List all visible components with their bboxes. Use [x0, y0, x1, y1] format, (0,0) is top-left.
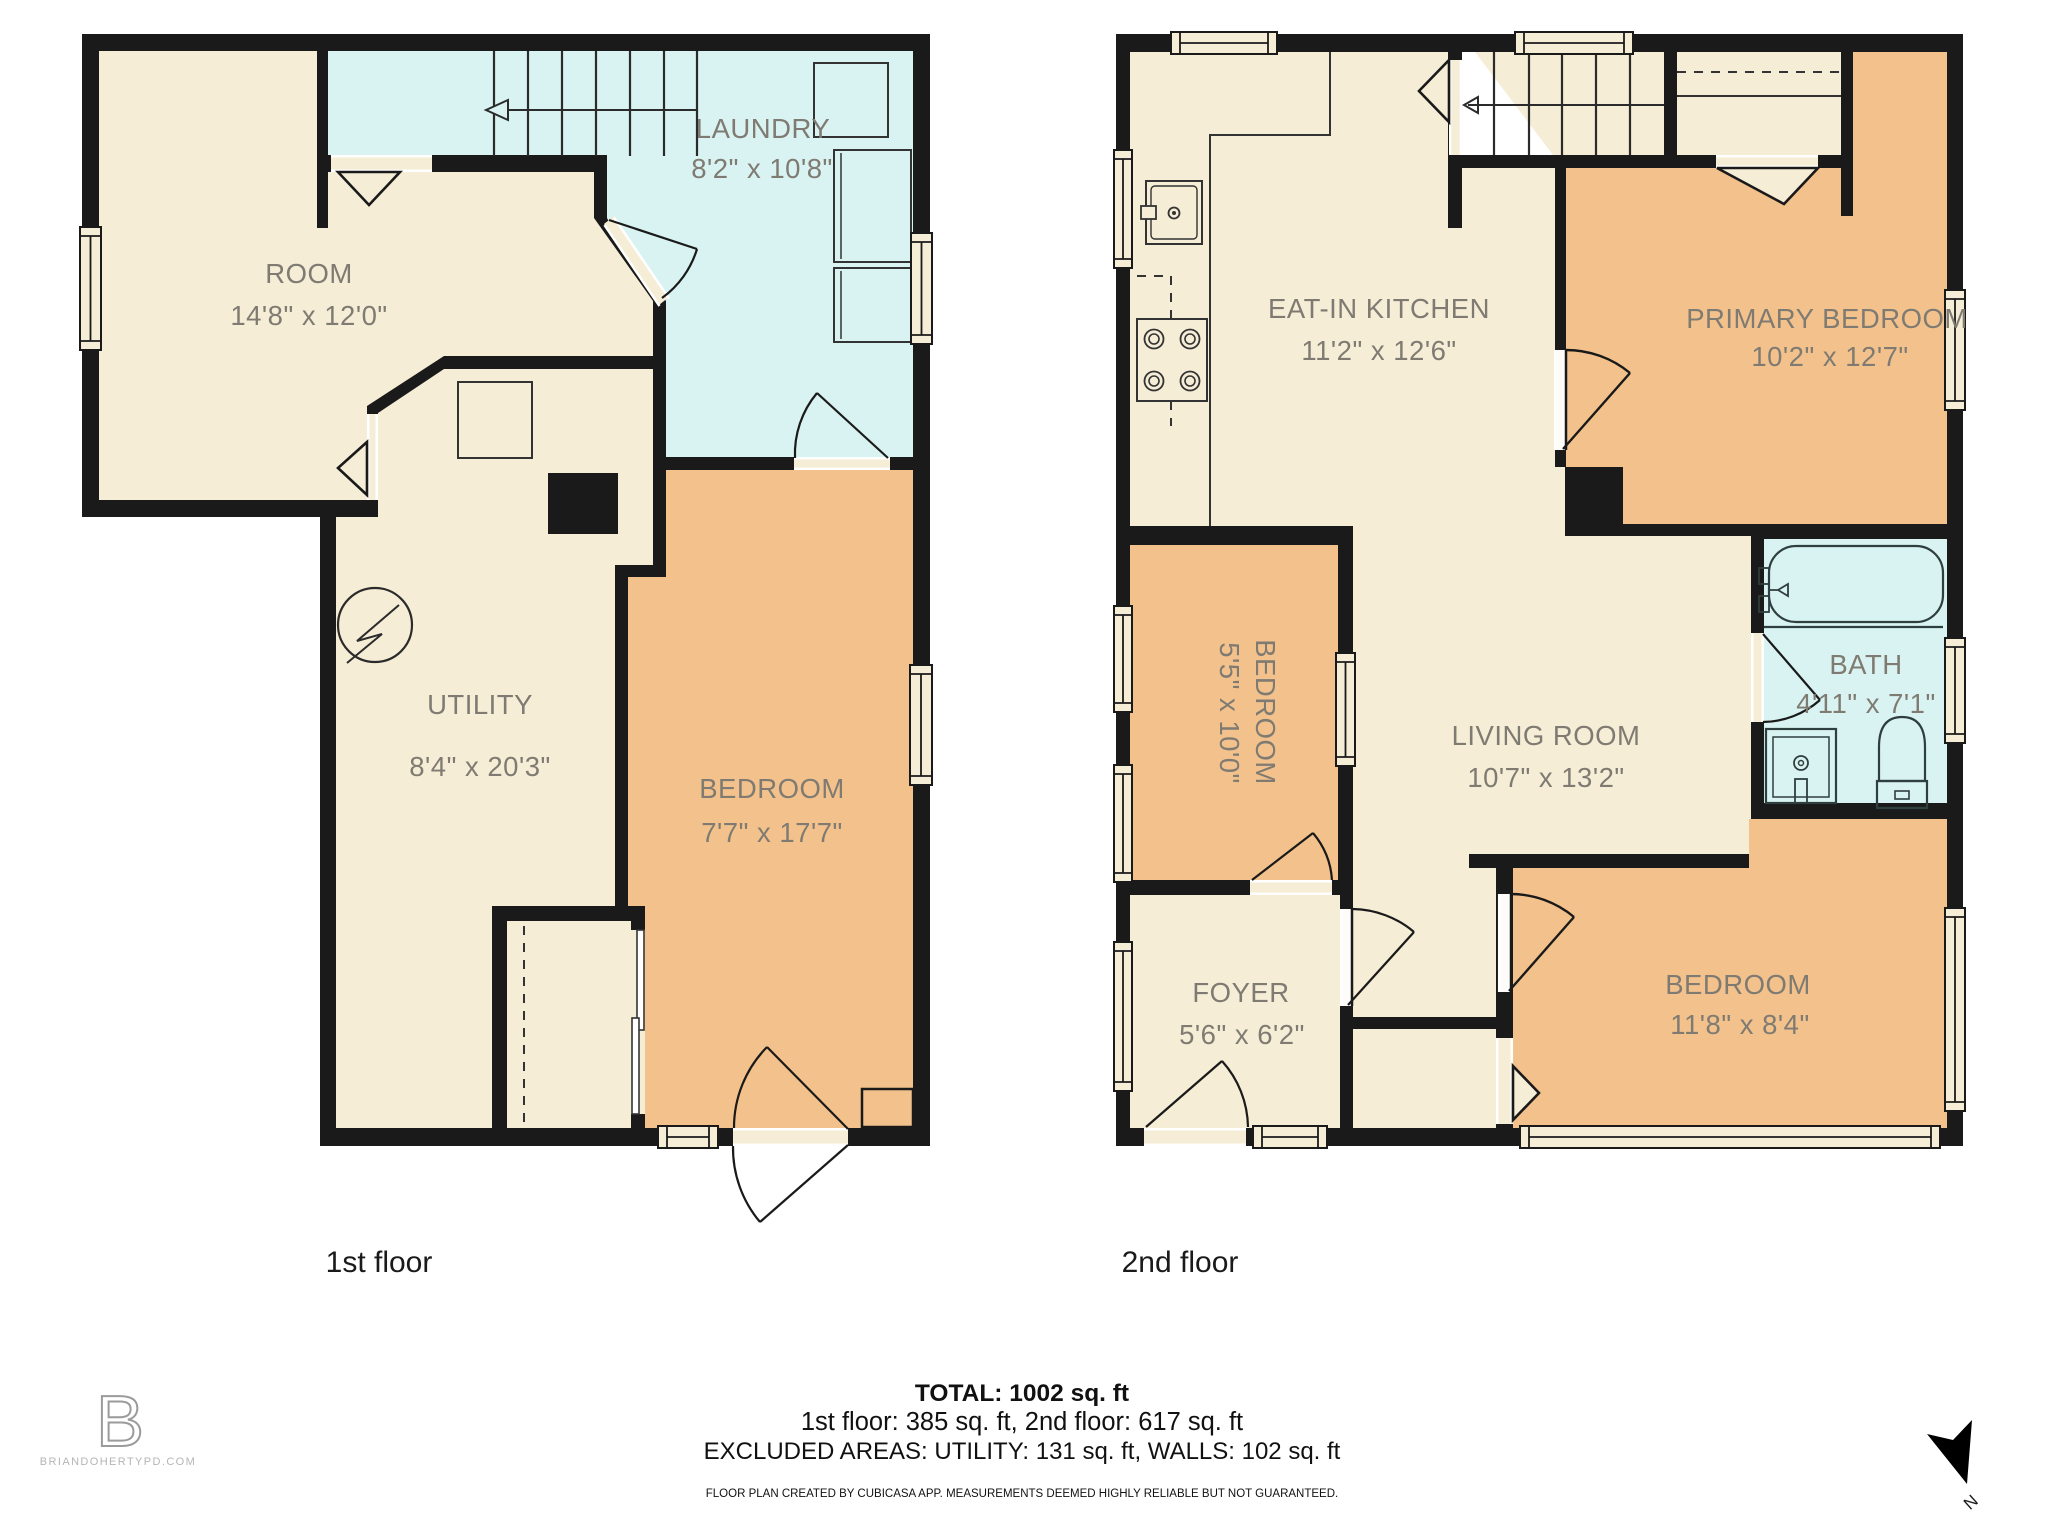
svg-text:BATH: BATH — [1829, 649, 1902, 680]
svg-text:FOYER: FOYER — [1192, 977, 1289, 1008]
svg-text:BRIANDOHERTYPD.COM: BRIANDOHERTYPD.COM — [40, 1456, 196, 1468]
svg-text:UTILITY: UTILITY — [427, 689, 533, 720]
svg-text:EXCLUDED AREAS: UTILITY: 131 s: EXCLUDED AREAS: UTILITY: 131 sq. ft, WAL… — [704, 1438, 1341, 1465]
svg-text:BEDROOM: BEDROOM — [1665, 969, 1811, 1000]
svg-text:LIVING ROOM: LIVING ROOM — [1452, 720, 1641, 751]
svg-text:ROOM: ROOM — [265, 258, 353, 289]
svg-text:B: B — [96, 1382, 144, 1462]
svg-text:7'7" x 17'7": 7'7" x 17'7" — [701, 817, 843, 848]
svg-text:EAT-IN KITCHEN: EAT-IN KITCHEN — [1268, 293, 1490, 324]
svg-text:11'2" x 12'6": 11'2" x 12'6" — [1301, 335, 1456, 366]
svg-text:FLOOR PLAN CREATED BY CUBICASA: FLOOR PLAN CREATED BY CUBICASA APP. MEAS… — [706, 1488, 1338, 1500]
svg-text:2nd floor: 2nd floor — [1122, 1246, 1239, 1279]
svg-text:LAUNDRY: LAUNDRY — [696, 113, 830, 144]
svg-text:10'2" x 12'7": 10'2" x 12'7" — [1751, 341, 1908, 372]
svg-text:BEDROOM: BEDROOM — [699, 773, 845, 804]
svg-text:8'2" x 10'8": 8'2" x 10'8" — [691, 153, 833, 184]
svg-text:11'8" x 8'4": 11'8" x 8'4" — [1670, 1009, 1810, 1040]
svg-text:5'5" x 10'0": 5'5" x 10'0" — [1214, 642, 1245, 784]
svg-text:1st floor: 1st floor — [326, 1246, 433, 1279]
svg-text:BEDROOM: BEDROOM — [1250, 639, 1281, 785]
svg-text:TOTAL: 1002 sq. ft: TOTAL: 1002 sq. ft — [915, 1380, 1129, 1407]
svg-text:1st floor: 385 sq. ft, 2nd flo: 1st floor: 385 sq. ft, 2nd floor: 617 sq… — [801, 1408, 1243, 1436]
svg-text:8'4" x 20'3": 8'4" x 20'3" — [409, 751, 551, 782]
svg-text:PRIMARY BEDROOM: PRIMARY BEDROOM — [1686, 303, 1968, 334]
svg-text:4'11" x 7'1": 4'11" x 7'1" — [1796, 688, 1936, 719]
svg-text:5'6" x 6'2": 5'6" x 6'2" — [1179, 1019, 1305, 1050]
svg-text:10'7" x 13'2": 10'7" x 13'2" — [1467, 762, 1624, 793]
svg-text:14'8" x 12'0": 14'8" x 12'0" — [230, 300, 387, 331]
